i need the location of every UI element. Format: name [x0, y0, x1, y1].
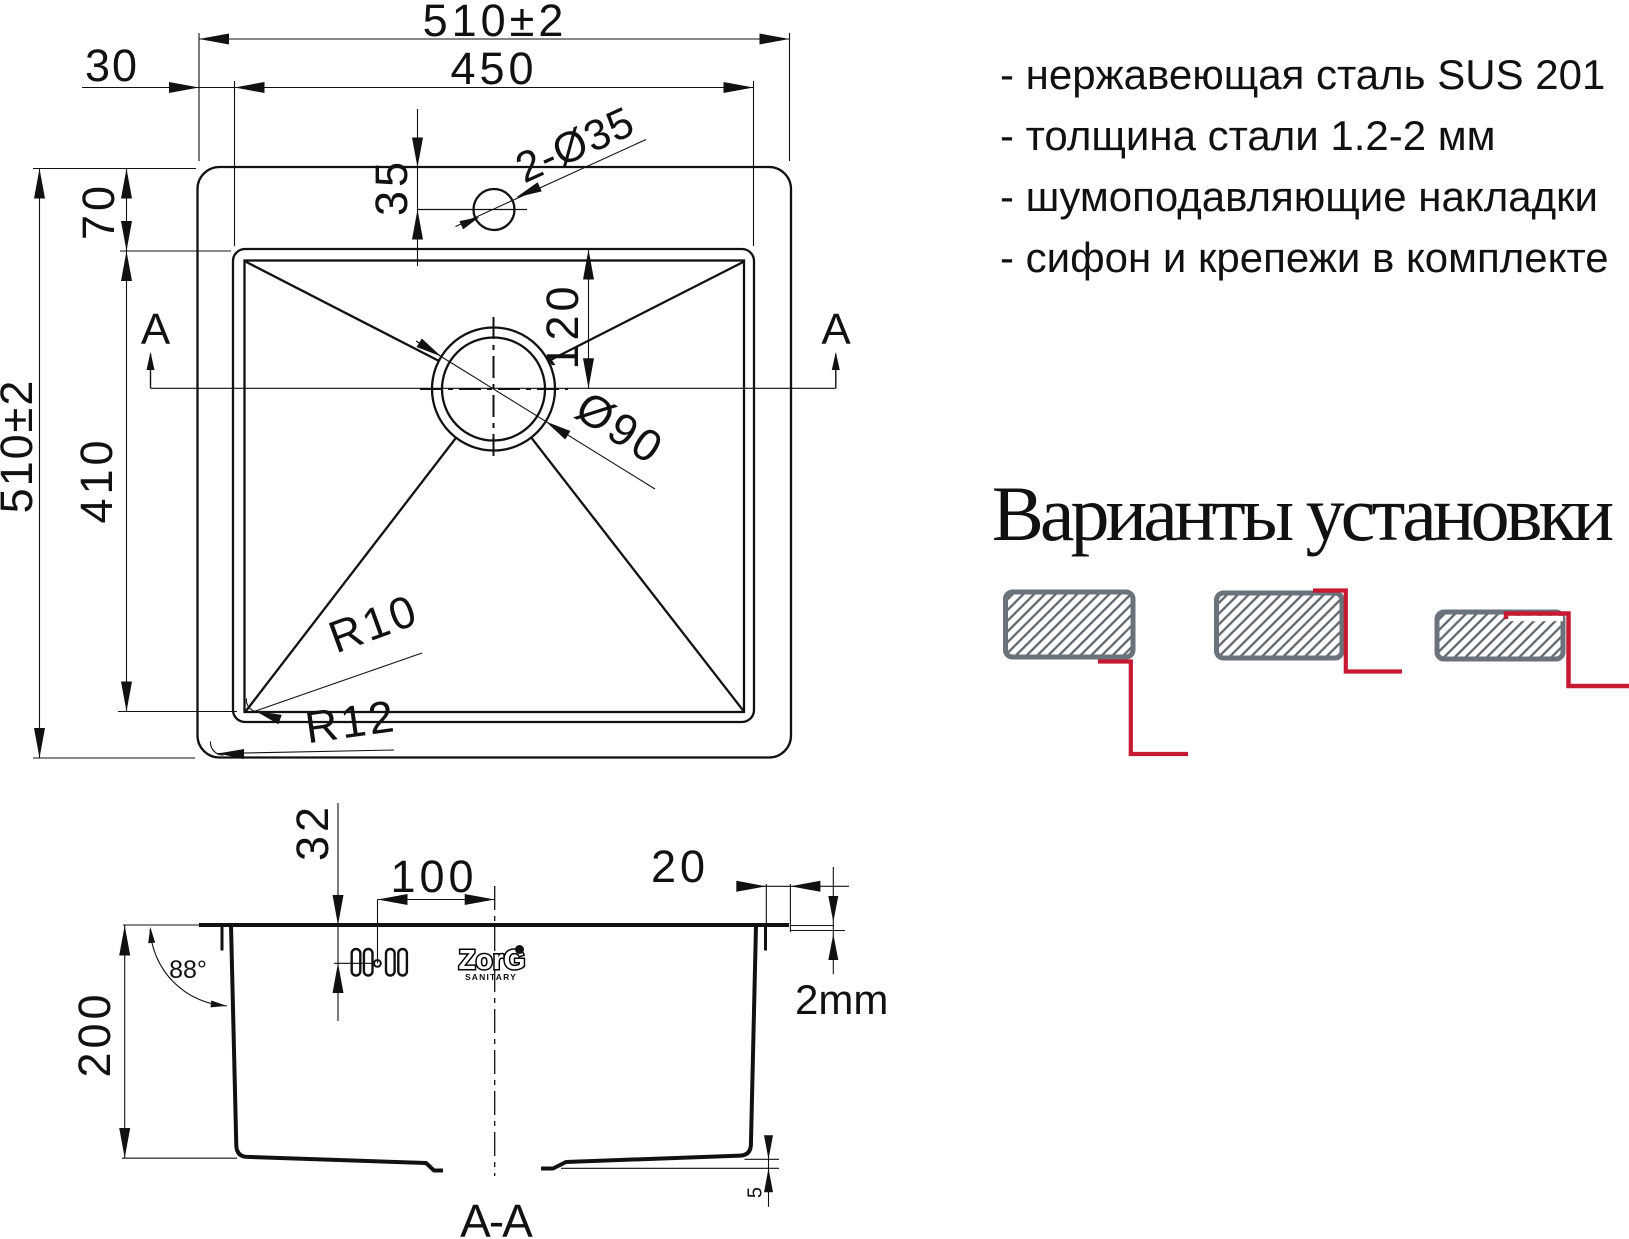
svg-text:- нержавеющая сталь SUS 201: - нержавеющая сталь SUS 201	[1000, 51, 1605, 98]
svg-text:510±2: 510±2	[0, 379, 42, 514]
svg-text:100: 100	[390, 851, 477, 902]
svg-text:A-A: A-A	[460, 1195, 533, 1239]
svg-text:88°: 88°	[169, 956, 207, 984]
svg-text:2mm: 2mm	[795, 976, 888, 1023]
svg-text:70: 70	[73, 182, 124, 240]
svg-text:35: 35	[366, 158, 417, 216]
svg-text:Варианты установки: Варианты установки	[992, 470, 1612, 557]
svg-text:А: А	[821, 305, 851, 354]
svg-text:450: 450	[450, 43, 537, 94]
svg-text:- толщина стали 1.2-2 мм: - толщина стали 1.2-2 мм	[1000, 112, 1496, 159]
svg-text:- сифон и крепежи в комплекте: - сифон и крепежи в комплекте	[1000, 234, 1609, 281]
svg-text:510±2: 510±2	[423, 0, 568, 46]
svg-text:30: 30	[85, 40, 139, 91]
svg-text:SANITARY: SANITARY	[465, 972, 517, 982]
svg-text:410: 410	[71, 436, 122, 523]
svg-text:5: 5	[744, 1186, 766, 1198]
svg-text:200: 200	[69, 990, 120, 1077]
svg-text:20: 20	[651, 841, 709, 892]
svg-text:- шумоподавляющие накладки: - шумоподавляющие накладки	[1000, 173, 1598, 220]
svg-text:120: 120	[537, 282, 588, 369]
svg-text:32: 32	[287, 803, 338, 861]
svg-text:А: А	[141, 305, 171, 354]
